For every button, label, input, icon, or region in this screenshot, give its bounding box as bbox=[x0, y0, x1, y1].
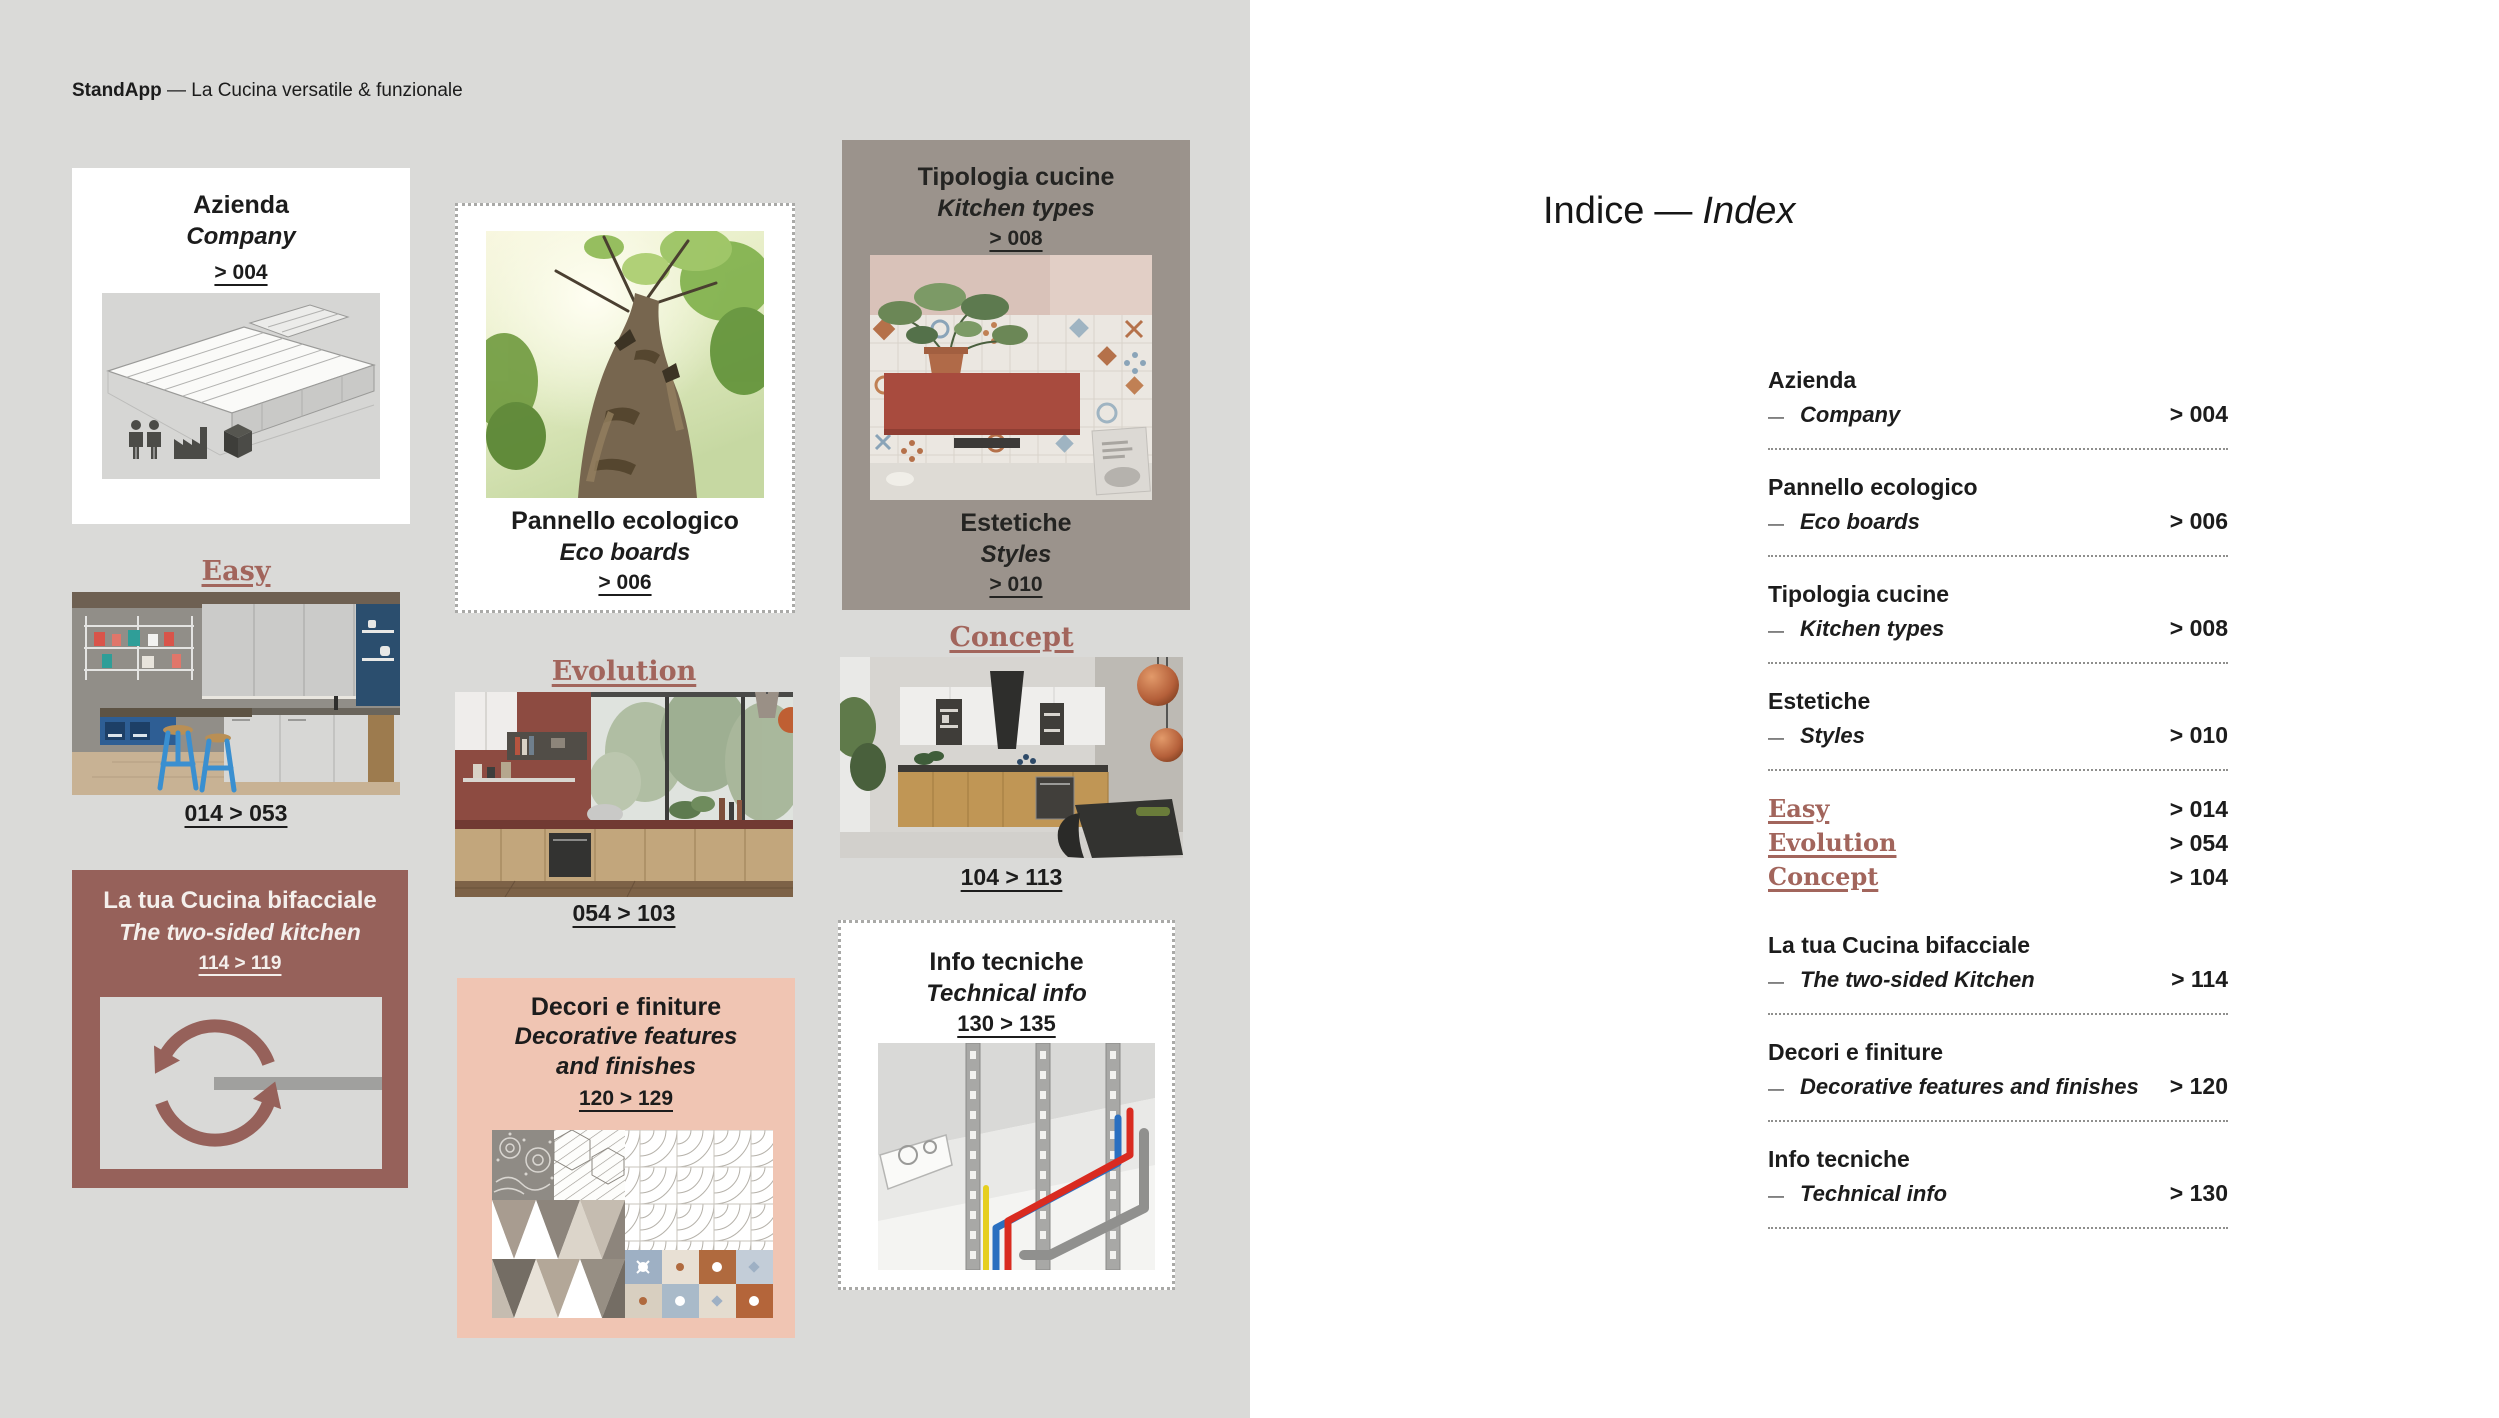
card-decori-subtitle-line2: and finishes bbox=[457, 1052, 795, 1082]
index-entry-page[interactable]: > 104 bbox=[2170, 862, 2228, 892]
index-entry-title-it: La tua Cucina bifacciale bbox=[1768, 931, 2228, 959]
index-entry-label[interactable]: Evolution bbox=[1768, 828, 1896, 858]
index-entry-pannello[interactable]: Pannello ecologico —Eco boards > 006 bbox=[1768, 473, 2228, 557]
card-tipologia-subtitle: Kitchen types bbox=[842, 194, 1190, 224]
dash: — bbox=[1768, 409, 1784, 426]
index-entry-info[interactable]: Info tecniche —Technical info > 130 bbox=[1768, 1145, 2228, 1229]
eco-tree-photo bbox=[486, 231, 764, 498]
package-icon bbox=[224, 424, 252, 458]
card-pannello-subtitle: Eco boards bbox=[458, 538, 792, 568]
index-entry-title-en: —Technical info bbox=[1768, 1180, 1947, 1211]
card-info-range-link[interactable]: 130 > 135 bbox=[957, 1011, 1055, 1037]
index-entry-azienda[interactable]: Azienda —Company > 004 bbox=[1768, 366, 2228, 450]
index-collections-group: Easy > 014 Evolution > 054 Concept > 104 bbox=[1768, 794, 2228, 892]
card-decori-range-link[interactable]: 120 > 129 bbox=[579, 1086, 673, 1112]
brand-name: StandApp bbox=[72, 80, 162, 101]
technical-pipes-diagram bbox=[878, 1043, 1155, 1270]
brand-header: StandApp — La Cucina versatile & funzion… bbox=[72, 80, 463, 102]
card-azienda-title: Azienda bbox=[72, 190, 410, 220]
card-decori-title: Decori e finiture bbox=[457, 992, 795, 1022]
index-entry-title-en: —Styles bbox=[1768, 722, 1865, 753]
card-bifacciale-range-link[interactable]: 114 > 119 bbox=[199, 951, 282, 977]
dash: — bbox=[1768, 730, 1784, 747]
card-azienda-page-link[interactable]: > 004 bbox=[214, 260, 267, 286]
factory-illustration bbox=[102, 293, 380, 479]
card-estetiche-subtitle: Styles bbox=[842, 540, 1190, 570]
index-entry-concept[interactable]: Concept > 104 bbox=[1768, 862, 2228, 892]
easy-range-link[interactable]: 014 > 053 bbox=[72, 799, 400, 827]
dash: — bbox=[1768, 1081, 1784, 1098]
index-entry-title-it: Pannello ecologico bbox=[1768, 473, 2228, 501]
index-entry-tipologia[interactable]: Tipologia cucine —Kitchen types > 008 bbox=[1768, 580, 2228, 664]
card-pannello-title: Pannello ecologico bbox=[458, 506, 792, 536]
index-entry-bifacciale[interactable]: La tua Cucina bifacciale —The two-sided … bbox=[1768, 931, 2228, 1015]
concept-section-link[interactable]: Concept bbox=[840, 622, 1183, 654]
easy-kitchen-photo bbox=[72, 592, 400, 795]
card-decori: Decori e finiture Decorative features an… bbox=[457, 978, 795, 1338]
decorative-patterns-collage bbox=[492, 1130, 773, 1318]
index-entry-easy[interactable]: Easy > 014 bbox=[1768, 794, 2228, 824]
evolution-section-link[interactable]: Evolution bbox=[455, 656, 793, 688]
dash: — bbox=[1768, 623, 1784, 640]
index-entry-title-en: —Eco boards bbox=[1768, 508, 1920, 539]
easy-section-link[interactable]: Easy bbox=[72, 556, 400, 588]
card-azienda-subtitle: Company bbox=[72, 222, 410, 252]
concept-kitchen-photo bbox=[840, 657, 1183, 858]
kitchen-types-photo bbox=[870, 255, 1152, 500]
index-entry-page[interactable]: > 008 bbox=[2170, 614, 2228, 642]
index-entry-title-it: Decori e finiture bbox=[1768, 1038, 2228, 1066]
dash: — bbox=[1768, 974, 1784, 991]
card-tipologia-estetiche: Tipologia cucine Kitchen types > 008 bbox=[842, 140, 1190, 610]
index-entry-title-it: Info tecniche bbox=[1768, 1145, 2228, 1173]
card-info: Info tecniche Technical info 130 > 135 bbox=[838, 920, 1175, 1290]
card-tipologia-page-link[interactable]: > 008 bbox=[989, 226, 1042, 252]
catalog-spread: StandApp — La Cucina versatile & funzion… bbox=[0, 0, 2499, 1418]
evolution-range-link[interactable]: 054 > 103 bbox=[455, 899, 793, 927]
index-entry-page[interactable]: > 004 bbox=[2170, 400, 2228, 428]
index-list: Azienda —Company > 004 Pannello ecologic… bbox=[1768, 366, 2228, 1252]
index-entry-label[interactable]: Easy bbox=[1768, 794, 1829, 824]
index-entry-page[interactable]: > 006 bbox=[2170, 507, 2228, 535]
index-entry-decori[interactable]: Decori e finiture —Decorative features a… bbox=[1768, 1038, 2228, 1122]
index-entry-title-it: Azienda bbox=[1768, 366, 2228, 394]
rotation-arrows-icon bbox=[100, 997, 382, 1169]
concept-range-link[interactable]: 104 > 113 bbox=[840, 863, 1183, 891]
index-entry-page[interactable]: > 014 bbox=[2170, 794, 2228, 824]
card-pannello-page-link[interactable]: > 006 bbox=[598, 570, 651, 596]
dash: — bbox=[1768, 516, 1784, 533]
index-entry-label[interactable]: Concept bbox=[1768, 862, 1878, 892]
index-entry-page[interactable]: > 120 bbox=[2170, 1072, 2228, 1100]
index-title-it: Indice bbox=[1543, 190, 1644, 232]
index-entry-page[interactable]: > 054 bbox=[2170, 828, 2228, 858]
index-entry-title-en: —Company bbox=[1768, 401, 1900, 432]
evolution-kitchen-photo bbox=[455, 692, 793, 897]
card-estetiche-title: Estetiche bbox=[842, 508, 1190, 538]
card-info-subtitle: Technical info bbox=[841, 979, 1172, 1009]
card-tipologia-title: Tipologia cucine bbox=[842, 162, 1190, 192]
card-decori-subtitle-line1: Decorative features bbox=[457, 1022, 795, 1052]
card-bifacciale: La tua Cucina bifacciale The two-sided k… bbox=[72, 870, 408, 1188]
index-entry-estetiche[interactable]: Estetiche —Styles > 010 bbox=[1768, 687, 2228, 771]
index-entry-title-it: Estetiche bbox=[1768, 687, 2228, 715]
index-entry-title-it: Tipologia cucine bbox=[1768, 580, 2228, 608]
card-azienda: Azienda Company > 004 bbox=[72, 168, 410, 524]
dash: — bbox=[1768, 1188, 1784, 1205]
index-entry-title-en: —The two-sided Kitchen bbox=[1768, 966, 2035, 997]
index-entry-page[interactable]: > 130 bbox=[2170, 1179, 2228, 1207]
index-title-en: Index bbox=[1702, 190, 1795, 232]
index-entry-evolution[interactable]: Evolution > 054 bbox=[1768, 828, 2228, 858]
index-entry-page[interactable]: > 010 bbox=[2170, 721, 2228, 749]
index-entry-page[interactable]: > 114 bbox=[2171, 965, 2228, 993]
card-bifacciale-subtitle: The two-sided kitchen bbox=[72, 917, 408, 947]
card-bifacciale-title: La tua Cucina bifacciale bbox=[72, 886, 408, 916]
index-entry-title-en: —Kitchen types bbox=[1768, 615, 1944, 646]
card-info-title: Info tecniche bbox=[841, 947, 1172, 977]
card-estetiche-page-link[interactable]: > 010 bbox=[989, 572, 1042, 598]
card-estetiche-block: Estetiche Styles > 010 bbox=[842, 508, 1190, 598]
brand-tagline: — La Cucina versatile & funzionale bbox=[167, 80, 463, 101]
index-title-dash: — bbox=[1654, 190, 1692, 232]
index-entry-title-en: —Decorative features and finishes bbox=[1768, 1073, 2139, 1104]
index-title: Indice—Index bbox=[1543, 188, 1795, 234]
card-pannello: Pannello ecologico Eco boards > 006 bbox=[455, 203, 795, 613]
